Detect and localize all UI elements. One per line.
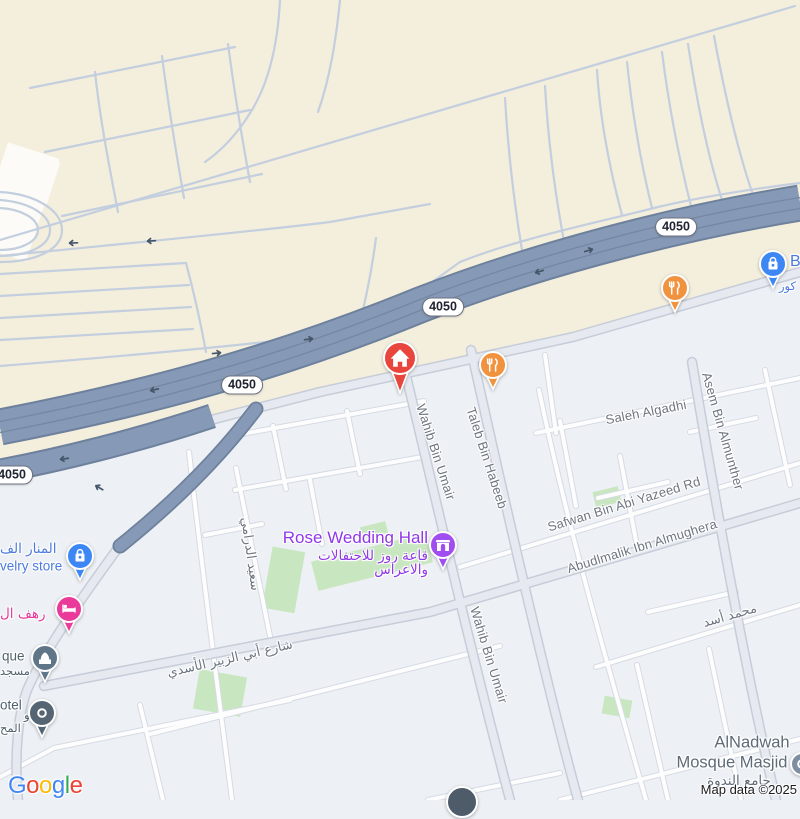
mosque-marker[interactable] [26, 639, 64, 691]
route-badge-4050: 4050 [422, 298, 464, 317]
map-viewport[interactable]: Wahib Bin UmairTaleb Bin HabeebWahib Bin… [0, 0, 800, 800]
restaurant-marker-2[interactable] [656, 269, 694, 321]
traffic-direction-arrow [95, 484, 104, 492]
hotel-gray-marker[interactable] [23, 694, 61, 746]
wedding-hall-marker[interactable] [424, 526, 462, 578]
jewelry-store-marker[interactable] [61, 537, 99, 589]
map-data-attribution: Map data ©2025 [701, 782, 797, 797]
google-logo[interactable]: Google [8, 772, 82, 800]
hotel-pink-marker[interactable] [50, 590, 88, 642]
route-badge-4050: 4050 [221, 376, 263, 395]
google-maps-canvas[interactable]: { "map": { "route_badges": [ {"label":"4… [0, 0, 800, 800]
logo-letter: o [39, 772, 52, 799]
restaurant-marker-1[interactable] [474, 346, 512, 398]
alnadwah-partial-marker[interactable] [785, 747, 800, 777]
home-marker[interactable] [378, 336, 422, 394]
shopping-marker[interactable] [754, 245, 792, 297]
map-base-layer [0, 0, 800, 800]
bottom-partial-marker[interactable] [441, 781, 483, 819]
route-badge-4050: 4050 [655, 218, 697, 237]
logo-letter: G [8, 772, 26, 799]
logo-letter: e [70, 772, 83, 799]
logo-letter: o [26, 772, 39, 799]
route-badge-4050: 4050 [0, 466, 33, 485]
logo-letter: g [52, 772, 65, 799]
